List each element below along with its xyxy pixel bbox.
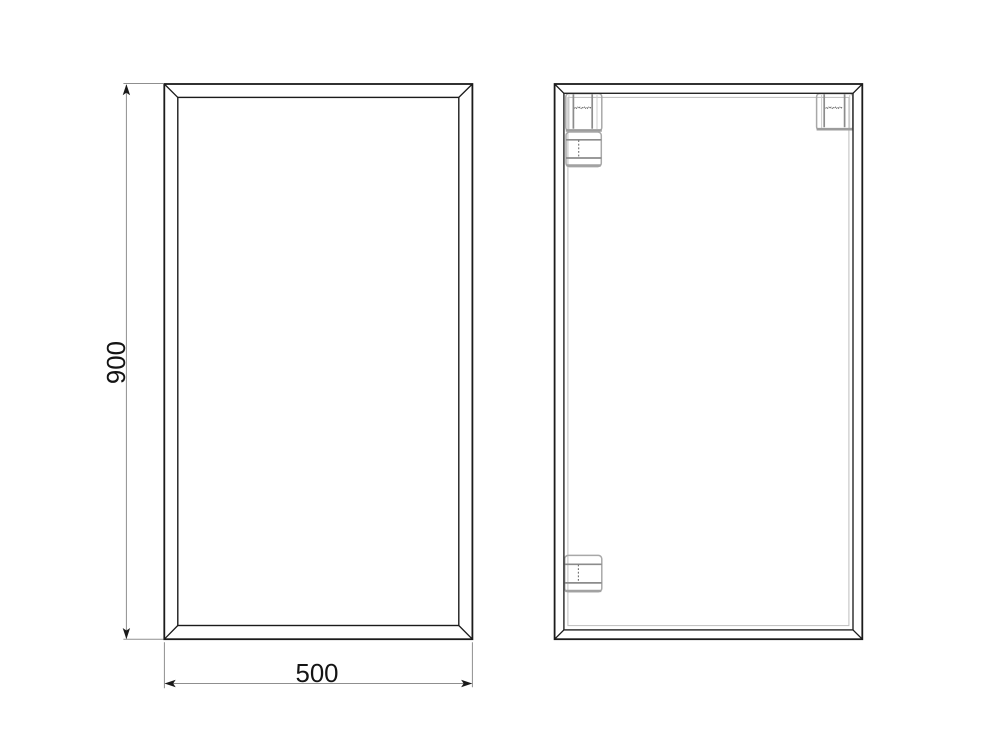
svg-text:500: 500	[295, 660, 338, 688]
svg-text:900: 900	[103, 341, 131, 384]
